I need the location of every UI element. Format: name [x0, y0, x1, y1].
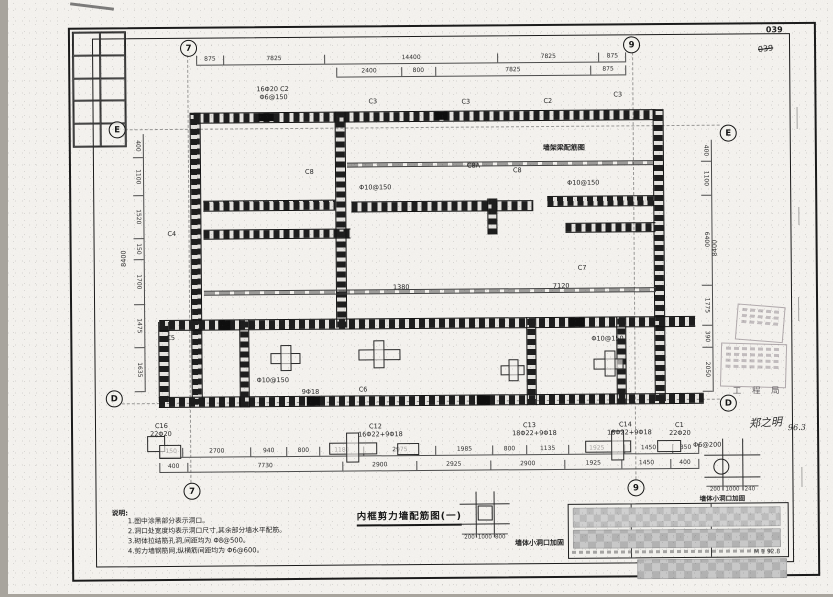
plan-label: 22Φ20	[150, 431, 172, 438]
dimension-value: 800	[493, 445, 527, 454]
scanned-paper-sheet: 039 039 7 9 E E D D 7 9 8757825144007825…	[8, 0, 833, 594]
notes-block: 说明: 1.图中涂黑部分表示洞口。2.洞口处宽度均表示洞口尺寸,其余部分墙水平配…	[112, 506, 348, 557]
wall-segment	[547, 195, 654, 207]
plan-label: C8	[305, 169, 314, 176]
plan-label: Φ10@150	[257, 377, 289, 384]
column-section-glyph	[358, 340, 400, 368]
grid-bubble-D-right: D	[720, 395, 737, 412]
dimension-value: 2900	[491, 460, 565, 470]
grid-bubble-E-left: E	[109, 121, 126, 138]
stamp	[720, 343, 787, 389]
dimension-value: 1100	[701, 162, 711, 195]
plan-label: C3	[368, 98, 377, 105]
dimension-col-right: 4001100640017753902050	[701, 140, 714, 392]
plan-label: 16Φ22+9Φ18	[358, 431, 403, 438]
dimension-value: 14400	[325, 53, 498, 63]
plan-label: C3	[613, 91, 622, 98]
opening-black-mark	[259, 113, 274, 121]
grid-bubble-7-top: 7	[180, 40, 197, 57]
plan-label: C6	[359, 386, 368, 393]
wall-segment	[351, 200, 533, 212]
wall-segment	[239, 319, 250, 407]
stamp	[735, 303, 786, 343]
dimension-value: 2400	[336, 67, 402, 77]
plan-label: 7120	[553, 283, 570, 290]
detail-label-center: 墙体小洞口加固	[515, 540, 564, 548]
dimension-value: 800	[402, 67, 436, 76]
plan-label: C2	[543, 98, 552, 105]
signature-handwriting: 郑之明	[749, 416, 783, 430]
opening-black-mark	[218, 320, 230, 329]
wall-segment	[203, 200, 335, 212]
detail-sketch-right: 2001000240	[704, 438, 760, 490]
mosaic-redaction	[573, 506, 781, 528]
plan-label: 1380	[393, 284, 410, 291]
dimension-value: 400	[159, 463, 188, 472]
signature-date: 96.3	[788, 424, 806, 433]
notes-heading: 说明:	[112, 509, 128, 517]
grid-bubble-9-top: 9	[623, 36, 640, 53]
column-section-glyph	[500, 359, 524, 381]
plan-label: 18Φ22+9Φ18	[512, 430, 557, 437]
opening-black-mark	[435, 112, 448, 120]
dimension-value: 1700	[134, 260, 144, 305]
grid-bubble-D-left: D	[106, 390, 123, 407]
detail-dim: 800	[493, 534, 508, 541]
plan-label: C7	[578, 265, 587, 272]
dimension-col-left: 40011001520150170014751635	[133, 134, 146, 392]
dimension-value: 1475	[134, 305, 144, 347]
dimension-value: 7730	[188, 462, 343, 472]
wall-segment	[335, 112, 348, 328]
plan-label: C5	[166, 335, 175, 342]
column-section-glyph	[397, 440, 419, 458]
stamp-bureau-text: 工 程 局	[733, 387, 784, 397]
detail-dim: 240	[741, 486, 758, 493]
dimension-total-left: 8400	[120, 250, 128, 267]
dimension-value: 1985	[437, 445, 494, 454]
dimension-value: 875	[600, 52, 627, 61]
plan-label: C8A	[467, 163, 480, 170]
sheet-number: 039	[766, 26, 783, 35]
wall-segment	[203, 229, 350, 240]
margin-mark	[798, 207, 799, 225]
margin-mark	[801, 467, 802, 487]
wall-segment	[487, 198, 497, 234]
column-section-glyph	[657, 436, 681, 456]
plan-label: C4	[167, 231, 176, 238]
detail-sketch-center: 2001000800	[460, 491, 510, 537]
margin-mark	[797, 107, 798, 129]
dimension-value: 7825	[436, 66, 591, 76]
dimension-value: 1925	[565, 459, 622, 468]
dimension-value: 400	[133, 134, 143, 158]
beam-detail-title: 墙架梁配筋图	[543, 145, 585, 153]
dimension-value: 2050	[702, 348, 712, 392]
plan-label: Φ6@150	[259, 94, 287, 101]
grid-bubble-E-right: E	[720, 125, 737, 142]
dimension-value: 875	[196, 56, 224, 65]
column-section-glyph	[147, 436, 181, 464]
dimension-value: 390	[702, 326, 712, 348]
margin-mark	[798, 297, 799, 321]
dimension-value: 7825	[498, 53, 600, 63]
dimension-total-right: 8400	[711, 240, 719, 257]
plan-label: Φ10@150	[567, 180, 599, 187]
dimension-value: 1135	[527, 445, 570, 454]
note-line: 4.剪力墙钢筋网,纵横筋间距均为 Φ6@600。	[128, 545, 348, 557]
opening-black-mark	[568, 318, 584, 327]
wall-segment	[190, 113, 203, 405]
dimension-value: 1100	[133, 159, 143, 196]
wall-segment	[526, 317, 537, 405]
dimension-value: 2925	[417, 460, 491, 470]
opening-black-mark	[307, 397, 320, 406]
plan-label: 18Φ22+9Φ18	[607, 429, 652, 436]
plan-label: Φ10@150	[591, 335, 623, 342]
plan-label: Φ10@150	[359, 184, 391, 191]
dimension-value: 1520	[133, 196, 143, 239]
notes-list: 1.图中涂黑部分表示洞口。2.洞口处宽度均表示洞口尺寸,其余部分墙水平配筋。3.…	[112, 516, 348, 557]
opening-black-mark	[477, 395, 490, 404]
grid-bubble-9-bottom: 9	[627, 479, 644, 496]
mosaic-redaction	[573, 528, 781, 549]
sheet-number-crossed: 039	[758, 44, 774, 54]
dimension-value: 1450	[622, 459, 671, 468]
grid-bubble-7-bottom: 7	[183, 483, 200, 500]
detail-dim: 200	[462, 535, 477, 542]
dimension-value: 1635	[134, 348, 144, 393]
column-section-glyph	[270, 345, 300, 371]
detail-dim: 1000	[477, 534, 492, 541]
plan-label: C3	[461, 99, 470, 106]
plan-label: C8	[513, 167, 522, 174]
dimension-value: 940	[251, 447, 287, 456]
dimension-value: 800	[287, 447, 321, 456]
drawing-title: 内框剪力墙配筋图(一)	[357, 508, 462, 527]
wall-segment	[565, 222, 655, 233]
dimension-value: 7825	[224, 55, 326, 65]
dimension-value: 150	[134, 239, 144, 260]
plan-label: 9Φ18	[302, 389, 320, 396]
column-section-glyph	[593, 350, 623, 376]
drawing-frame: 039 039 7 9 E E D D 7 9 8757825144007825…	[6, 0, 833, 597]
dimension-value: 1775	[702, 285, 712, 326]
dimension-value: 400	[672, 459, 700, 468]
mosaic-redaction	[637, 558, 787, 579]
scale-mark: M 1 92.8	[754, 549, 780, 556]
detail-dim: 1000	[724, 486, 741, 493]
dimension-value: 875	[591, 65, 626, 74]
dimension-value: 2700	[183, 447, 251, 457]
plan-label: 22Φ20	[669, 430, 691, 437]
detail-dim: 200	[706, 487, 723, 494]
dimension-value: 400	[701, 140, 711, 162]
wall-segment	[653, 109, 666, 401]
